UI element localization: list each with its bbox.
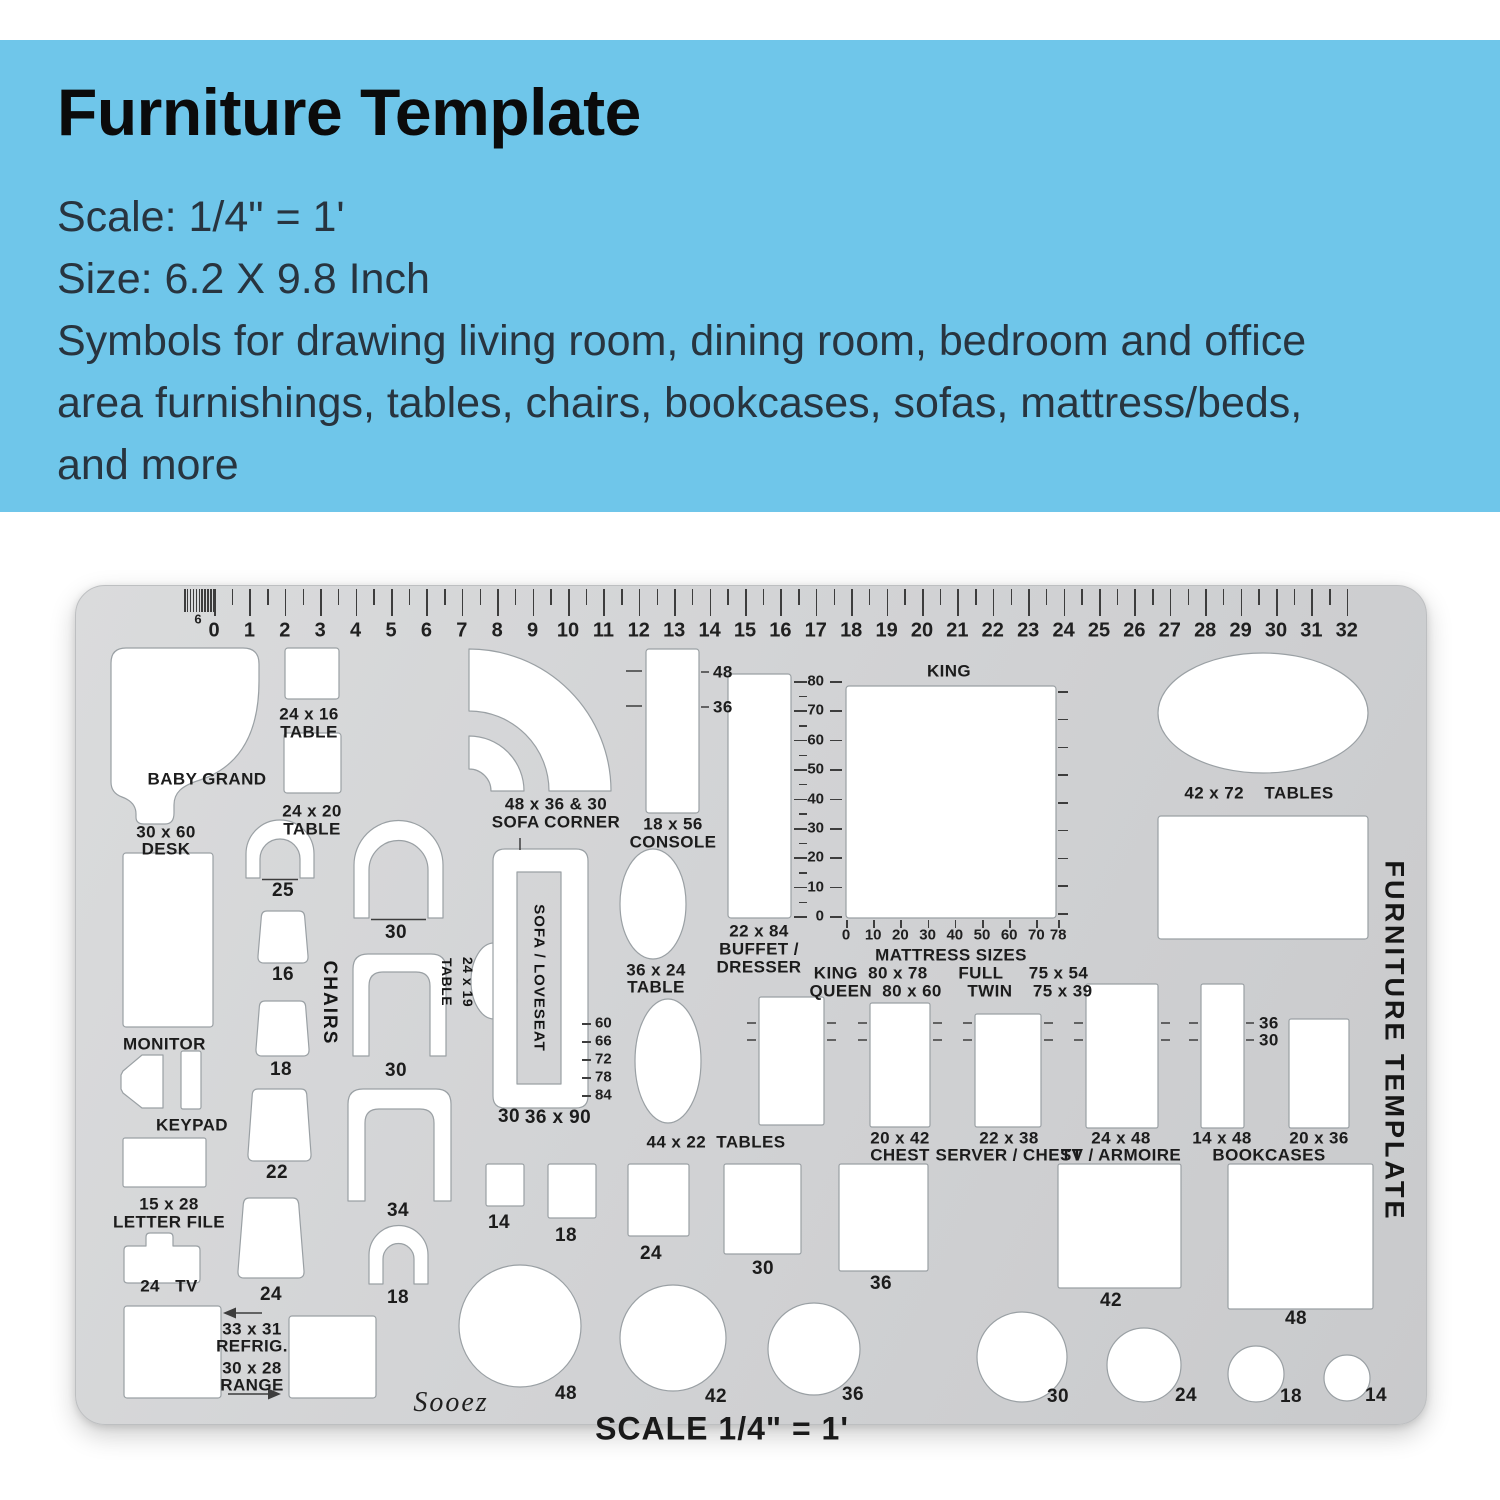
ruler-tick	[780, 589, 782, 616]
ruler-half-tick	[1081, 589, 1083, 605]
buffet-scale-tick	[830, 887, 842, 889]
label-range: RANGE	[220, 1374, 283, 1395]
label-square-30: 30	[752, 1257, 774, 1281]
ruler-tick	[1205, 589, 1207, 616]
mattress-scale-number: 10	[865, 927, 882, 944]
buffet-scale-number: 40	[807, 790, 824, 807]
cutout-desk	[123, 853, 213, 1027]
ruler-half-tick	[798, 589, 800, 605]
label-console: CONSOLE	[630, 831, 717, 852]
cutout-square-30	[724, 1164, 801, 1254]
label-table-24x19-name: TABLE	[439, 958, 455, 1006]
sofa-length-number: 60	[595, 1015, 612, 1032]
ruler-tick	[674, 589, 676, 616]
product-info-banner: Furniture Template Scale: 1/4" = 1'Size:…	[0, 40, 1500, 512]
ruler-half-tick	[1046, 589, 1048, 605]
buffet-scale-minor-tick	[799, 813, 807, 815]
king-side-tick	[1058, 830, 1068, 832]
left-arrow-icon	[223, 1308, 236, 1319]
label-sofa-corner: SOFA CORNER	[492, 811, 620, 832]
label-square-24: 24	[640, 1242, 662, 1266]
label-table-36x24: TABLE	[627, 976, 684, 997]
ruler-tick	[639, 589, 641, 616]
king-side-tick	[1058, 885, 1068, 887]
ruler-number: 7	[456, 620, 467, 643]
buffet-scale-number: 20	[807, 849, 824, 866]
ruler-fine-tick	[187, 589, 189, 612]
buffet-scale-tick	[794, 769, 807, 771]
ruler-fine-tick	[193, 589, 195, 612]
cutout-chair-16	[258, 911, 308, 963]
label-furniture-template-side: FURNITURE TEMPLATE	[1379, 861, 1410, 1222]
sofa-length-number: 78	[595, 1069, 612, 1086]
ruler-fine-tick	[201, 589, 203, 612]
ruler-half-tick	[515, 589, 517, 605]
ruler-number: 17	[805, 620, 827, 643]
ruler-number: 16	[769, 620, 791, 643]
king-side-tick	[1058, 719, 1068, 721]
ruler-tick	[249, 589, 251, 616]
buffet-scale-tick	[794, 740, 807, 742]
ruler-number: 25	[1088, 620, 1110, 643]
label-chair-30b: 30	[385, 1059, 407, 1083]
buffet-scale-tick	[830, 740, 842, 742]
ruler-tick	[710, 589, 712, 616]
mattress-scale-number: 50	[974, 927, 991, 944]
buffet-scale-minor-tick	[799, 843, 807, 845]
ruler-half-tick	[267, 589, 269, 605]
ruler-number: 2	[279, 620, 290, 643]
cutout-chair-30a	[354, 821, 443, 919]
buffet-scale-tick	[830, 857, 842, 859]
cutout-refrigerator	[124, 1306, 221, 1398]
description-line-2: area furnishings, tables, chairs, bookca…	[57, 372, 1306, 434]
label-keypad: KEYPAD	[156, 1114, 228, 1135]
cutout-server-chest-22x38	[975, 1014, 1041, 1127]
buffet-scale-tick	[830, 710, 842, 712]
cutout-chair-22	[248, 1089, 311, 1161]
king-side-tick	[1058, 858, 1068, 860]
label-buffet-2: DRESSER	[717, 956, 802, 977]
cutout-range	[289, 1316, 376, 1398]
ruler-tick	[816, 589, 818, 616]
ruler-half-tick	[303, 589, 305, 605]
buffet-scale-tick	[794, 828, 807, 830]
ruler-number: 9	[527, 620, 538, 643]
ruler-half-tick	[763, 589, 765, 605]
product-description: Scale: 1/4" = 1'Size: 6.2 X 9.8 InchSymb…	[57, 186, 1306, 496]
cutout-square-18	[548, 1164, 596, 1218]
buffet-scale-number: 50	[807, 761, 824, 778]
buffet-scale-minor-tick	[799, 902, 807, 904]
ruler-half-tick	[586, 589, 588, 605]
ruler-tick	[1134, 589, 1136, 616]
ruler-number: 24	[1052, 620, 1074, 643]
cutout-rect-table-42x72	[1158, 816, 1368, 939]
sofa-length-number: 84	[595, 1087, 612, 1104]
ruler-fine-tick	[204, 589, 206, 612]
label-sofa-width-30: 30	[498, 1105, 520, 1129]
sofa-length-tick	[582, 1077, 591, 1079]
ruler-half-tick	[1011, 589, 1013, 605]
label-desk: DESK	[142, 838, 191, 859]
ruler-half-tick	[409, 589, 411, 605]
buffet-scale-minor-tick	[799, 784, 807, 786]
ruler-fine-tick	[199, 589, 201, 612]
label-square-36: 36	[870, 1272, 892, 1296]
ruler-number: 14	[698, 620, 720, 643]
buffet-scale-tick	[794, 799, 807, 801]
cutout-keypad	[123, 1138, 206, 1187]
mattress-scale-number: 78	[1050, 927, 1067, 944]
ruler-fine-label: 6	[194, 612, 201, 627]
label-square-48: 48	[1285, 1307, 1307, 1331]
ruler-half-tick	[727, 589, 729, 605]
cutout-table-44x22	[759, 997, 824, 1125]
ruler-fine-tick	[213, 589, 215, 612]
label-baby-grand: BABY GRAND	[148, 768, 267, 789]
ruler-tick	[1311, 589, 1313, 616]
cutout-oval-table-36x24-bottom	[635, 999, 701, 1123]
buffet-scale-tick	[794, 710, 807, 712]
king-side-tick	[1058, 802, 1068, 804]
mattress-scale-number: 40	[946, 927, 963, 944]
spec-size: Size: 6.2 X 9.8 Inch	[57, 248, 1306, 310]
ruler-number: 0	[208, 620, 219, 643]
ruler-half-tick	[904, 589, 906, 605]
ruler-tick	[356, 589, 358, 616]
sofa-length-number: 72	[595, 1051, 612, 1068]
ruler-number: 27	[1159, 620, 1181, 643]
cutout-circle-48	[459, 1265, 581, 1387]
cutout-square-24	[628, 1164, 689, 1236]
mattress-scale-number: 70	[1028, 927, 1045, 944]
buffet-scale-number: 0	[816, 908, 824, 925]
ruler-number: 10	[557, 620, 579, 643]
buffet-scale-tick	[794, 857, 807, 859]
ruler-half-tick	[1329, 589, 1331, 605]
cutout-monitor	[121, 1055, 163, 1108]
label-square-42: 42	[1100, 1289, 1122, 1313]
label-circle-36: 36	[842, 1383, 864, 1407]
label-tables-42x72: 42 x 72 TABLES	[1184, 782, 1333, 803]
ruler-half-tick	[869, 589, 871, 605]
ruler-tick	[568, 589, 570, 616]
ruler-half-tick	[1258, 589, 1260, 605]
ruler-half-tick	[550, 589, 552, 605]
ruler-tick	[497, 589, 499, 616]
mattress-scale-number: 30	[919, 927, 936, 944]
ruler-number: 6	[421, 620, 432, 643]
ruler-number: 8	[492, 620, 503, 643]
label-chairs: CHAIRS	[318, 961, 340, 1046]
ruler-number: 30	[1265, 620, 1287, 643]
label-chair-16: 16	[272, 963, 294, 987]
buffet-scale-number: 10	[807, 878, 824, 895]
cutout-chair-18-small	[369, 1226, 428, 1285]
ruler-number: 20	[911, 620, 933, 643]
ruler-tick	[957, 589, 959, 616]
cutout-chair-30b	[353, 954, 446, 1056]
ruler-half-tick	[480, 589, 482, 605]
ruler-number: 19	[875, 620, 897, 643]
buffet-scale-tick	[794, 916, 807, 918]
buffet-scale-tick	[830, 769, 842, 771]
label-circle-24: 24	[1175, 1384, 1197, 1408]
ruler-half-tick	[975, 589, 977, 605]
cutout-table-24x16	[285, 648, 339, 699]
ruler-number: 21	[946, 620, 968, 643]
buffet-scale-tick	[830, 916, 842, 918]
ruler-tick	[887, 589, 889, 616]
ruler-number: 3	[315, 620, 326, 643]
ruler-number: 23	[1017, 620, 1039, 643]
ruler-tick	[922, 589, 924, 616]
ruler-half-tick	[1117, 589, 1119, 605]
cutout-baby-grand-piano	[111, 648, 259, 824]
ruler-half-tick	[373, 589, 375, 605]
ruler-number: 12	[628, 620, 650, 643]
ruler-tick	[391, 589, 393, 616]
label-chair-22: 22	[266, 1161, 288, 1185]
ruler-number: 28	[1194, 620, 1216, 643]
ruler-tick	[1099, 589, 1101, 616]
label-bookcase-tick-30: 30	[1259, 1029, 1279, 1050]
ruler-half-tick	[338, 589, 340, 605]
king-side-tick	[1058, 774, 1068, 776]
ruler-fine-tick	[207, 589, 209, 612]
cutout-tv-armoire-24x48	[1086, 984, 1158, 1128]
label-sofa-36x90: 36 x 90	[525, 1106, 591, 1130]
sofa-length-tick	[582, 1041, 591, 1043]
ruler-half-tick	[621, 589, 623, 605]
cutout-monitor-side	[181, 1051, 201, 1109]
label-chair-34: 34	[387, 1199, 409, 1223]
ruler-number: 22	[982, 620, 1004, 643]
sofa-length-tick	[582, 1023, 591, 1025]
description-line-3: and more	[57, 434, 1306, 496]
label-king: KING	[927, 660, 971, 681]
label-refrig: REFRIG.	[216, 1335, 288, 1356]
description-line-1: Symbols for drawing living room, dining …	[57, 310, 1306, 372]
label-square-18: 18	[555, 1224, 577, 1248]
ruler-tick	[462, 589, 464, 616]
ruler-number: 32	[1336, 620, 1358, 643]
buffet-scale-tick	[794, 681, 807, 683]
sofa-length-tick	[582, 1095, 591, 1097]
label-sofa-loveseat: SOFA / LOVESEAT	[531, 904, 548, 1052]
label-chair-18-small: 18	[387, 1286, 409, 1310]
spec-scale: Scale: 1/4" = 1'	[57, 186, 1306, 248]
label-chest: CHEST	[870, 1144, 930, 1165]
ruler-tick	[320, 589, 322, 616]
label-console-tick-36: 36	[713, 696, 733, 717]
label-circle-18: 18	[1280, 1385, 1302, 1409]
label-table-24x19-size: 24 x 19	[460, 957, 476, 1007]
cutout-king-mattress	[846, 686, 1056, 918]
ruler-tick	[1241, 589, 1243, 616]
cutout-square-14	[486, 1164, 524, 1206]
ruler-half-tick	[1294, 589, 1296, 605]
ruler-number: 31	[1300, 620, 1322, 643]
cutout-bookcase-20x36	[1289, 1019, 1349, 1128]
cutout-chair-34	[348, 1089, 451, 1201]
label-tv-24: 24 TV	[140, 1275, 198, 1296]
king-side-tick	[1058, 747, 1068, 749]
ruler-tick	[533, 589, 535, 616]
cutout-square-48	[1228, 1164, 1373, 1309]
buffet-scale-number: 30	[807, 820, 824, 837]
ruler-number: 18	[840, 620, 862, 643]
ruler-tick	[603, 589, 605, 616]
label-scale-note: SCALE 1/4" = 1'	[595, 1411, 849, 1448]
ruler-half-tick	[657, 589, 659, 605]
cutout-circle-24	[1107, 1328, 1181, 1402]
label-chair-18: 18	[270, 1058, 292, 1082]
buffet-scale-minor-tick	[799, 872, 807, 874]
label-square-14: 14	[488, 1211, 510, 1235]
product-title: Furniture Template	[57, 74, 641, 150]
cutout-square-42	[1058, 1164, 1181, 1288]
ruler-number: 5	[385, 620, 396, 643]
ruler-fine-tick	[210, 589, 212, 612]
label-table-24x16: TABLE	[280, 721, 337, 742]
cutout-circle-36	[768, 1303, 860, 1395]
ruler-half-tick	[1188, 589, 1190, 605]
cutout-circle-42	[620, 1285, 726, 1391]
label-table-24x19: 24 x 19TABLE	[436, 957, 478, 1007]
label-console-tick-48: 48	[713, 661, 733, 682]
label-circle-14: 14	[1365, 1384, 1387, 1408]
ruler-number: 26	[1123, 620, 1145, 643]
label-circle-30: 30	[1047, 1385, 1069, 1409]
cutout-buffet-dresser	[728, 674, 791, 918]
cutout-chest-20x42	[870, 1003, 930, 1127]
label-mattress-row-2: QUEEN 80 x 60 TWIN 75 x 39	[810, 980, 1093, 1001]
cutout-oval-table-42x72	[1158, 653, 1368, 773]
mattress-scale-number: 20	[892, 927, 909, 944]
cutout-console	[646, 649, 699, 813]
label-letter-file: LETTER FILE	[113, 1211, 225, 1232]
cutout-chair-24	[238, 1198, 304, 1278]
ruler-number: 13	[663, 620, 685, 643]
ruler-half-tick	[1223, 589, 1225, 605]
ruler-tick	[1170, 589, 1172, 616]
cutout-sofa-corner-inner	[469, 736, 524, 791]
label-chair-25: 25	[272, 879, 294, 903]
ruler-half-tick	[1152, 589, 1154, 605]
label-chair-30a: 30	[385, 921, 407, 945]
label-chair-24: 24	[260, 1283, 282, 1307]
label-circle-48: 48	[555, 1382, 577, 1406]
buffet-scale-number: 70	[807, 702, 824, 719]
ruler-number: 1	[244, 620, 255, 643]
buffet-scale-tick	[830, 828, 842, 830]
buffet-scale-minor-tick	[799, 755, 807, 757]
cutout-square-36	[839, 1164, 928, 1271]
ruler-half-tick	[232, 589, 234, 605]
ruler-number: 29	[1229, 620, 1251, 643]
buffet-scale-number: 80	[807, 673, 824, 690]
ruler-number: 15	[734, 620, 756, 643]
sofa-length-number: 66	[595, 1033, 612, 1050]
king-side-tick	[1058, 691, 1068, 693]
ruler-tick	[745, 589, 747, 616]
cutout-circle-14	[1324, 1355, 1370, 1401]
furniture-template-stencil: 0123456789101112131415161718192021222324…	[75, 585, 1427, 1425]
buffet-scale-tick	[830, 799, 842, 801]
ruler-tick	[285, 589, 287, 616]
ruler-half-tick	[444, 589, 446, 605]
ruler-fine-tick	[190, 589, 192, 612]
cutout-circle-18	[1228, 1346, 1284, 1402]
ruler-fine-tick	[196, 589, 198, 612]
label-tables-44x22: 44 x 22 TABLES	[647, 1131, 786, 1152]
label-bookcases: BOOKCASES	[1212, 1144, 1325, 1165]
ruler-half-tick	[692, 589, 694, 605]
ruler-tick	[1028, 589, 1030, 616]
king-side-tick	[1058, 913, 1068, 915]
ruler-tick	[426, 589, 428, 616]
ruler-tick	[1347, 589, 1349, 616]
cutout-bookcase-14x48	[1201, 984, 1244, 1128]
label-monitor: MONITOR	[123, 1033, 206, 1054]
cutout-chair-18	[256, 1001, 309, 1056]
buffet-scale-tick	[830, 681, 842, 683]
ruler-tick	[851, 589, 853, 616]
mattress-scale-number: 60	[1001, 927, 1018, 944]
buffet-scale-number: 60	[807, 731, 824, 748]
ruler-number: 4	[350, 620, 361, 643]
cutout-oval-table-36x24-top	[620, 849, 686, 959]
buffet-scale-minor-tick	[799, 696, 807, 698]
mattress-scale-number: 0	[842, 927, 850, 944]
sofa-length-tick	[582, 1059, 591, 1061]
buffet-scale-tick	[794, 887, 807, 889]
ruler-fine-tick	[184, 589, 186, 612]
brand-logo: Sooez	[413, 1387, 488, 1419]
ruler-tick	[1276, 589, 1278, 616]
ruler-tick	[1064, 589, 1066, 616]
label-circle-42: 42	[705, 1385, 727, 1409]
ruler-half-tick	[940, 589, 942, 605]
label-tv-armoire: TV / ARMOIRE	[1061, 1144, 1181, 1165]
buffet-scale-minor-tick	[799, 725, 807, 727]
label-table-24x20: TABLE	[283, 818, 340, 839]
ruler-tick	[993, 589, 995, 616]
ruler-number: 11	[593, 620, 614, 643]
ruler-half-tick	[834, 589, 836, 605]
